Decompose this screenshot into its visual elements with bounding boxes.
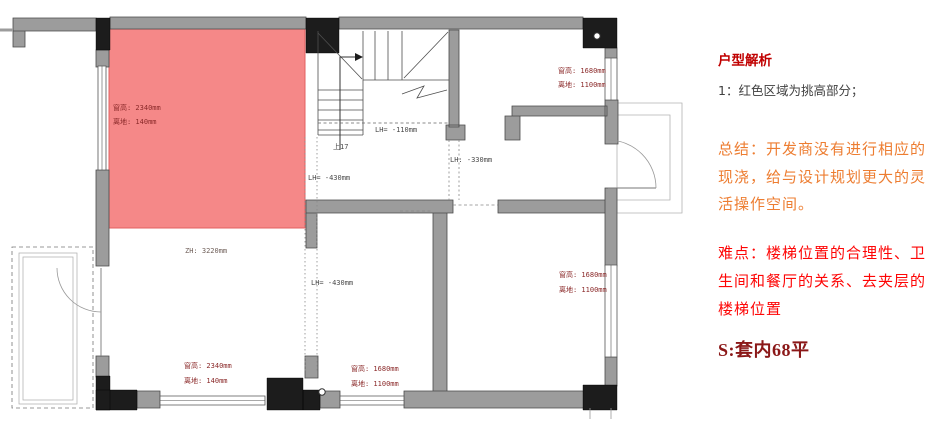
stairs-arrowhead (355, 53, 363, 61)
door-swing-arc (608, 140, 656, 188)
difficulty-line: 难点：楼梯位置的合理性、卫 (718, 239, 926, 267)
panel-difficulty: 难点：楼梯位置的合理性、卫 生间和餐厅的关系、去夹层的 楼梯位置 (718, 239, 926, 323)
door-swing-arc (57, 268, 101, 312)
dim-label: 离地: 140mm (184, 377, 228, 385)
balcony-dashed-outline (12, 247, 93, 408)
entry-porch-outline (617, 103, 682, 213)
panel-summary: 总结：开发商没有进行相应的 现浇，给与设计规划更大的灵 活操作空间。 (718, 136, 926, 219)
level-label: LH: -330mm (450, 156, 492, 164)
highlight-region-red (109, 29, 305, 228)
dim-label: 窗高: 2340mm (113, 104, 161, 112)
page: 窗高: 2340mm 离地: 140mm ZH: 3220mm LH= -430… (0, 0, 952, 440)
analysis-panel: 户型解析 1：红色区域为挑高部分； 总结：开发商没有进行相应的 现浇，给与设计规… (718, 0, 950, 440)
balcony-railing-inner (23, 257, 73, 400)
panel-point-1: 1：红色区域为挑高部分； (718, 80, 863, 99)
dim-label: 窗高: 1680mm (559, 271, 607, 279)
circle-marker (319, 389, 325, 395)
dim-label: 离地: 140mm (113, 118, 157, 126)
floor-plan: 窗高: 2340mm 离地: 140mm ZH: 3220mm LH= -430… (0, 0, 710, 440)
dim-label: 离地: 1100mm (558, 81, 606, 89)
dim-label: 离地: 1100mm (351, 380, 399, 388)
dim-label: 窗高: 1680mm (351, 365, 399, 373)
difficulty-line: 楼梯位置 (718, 295, 926, 323)
floor-plan-drawing (0, 0, 710, 440)
summary-line: 现浇，给与设计规划更大的灵 (718, 164, 926, 192)
entry-door (608, 140, 656, 188)
level-label: LH= -430mm (308, 174, 350, 182)
panel-area: S:套内68平 (718, 336, 810, 362)
dim-label: ZH: 3220mm (185, 247, 227, 255)
stairs-up-arrow (340, 57, 355, 150)
summary-line: 总结：开发商没有进行相应的 (718, 136, 926, 164)
summary-line: 活操作空间。 (718, 191, 926, 219)
balcony-door (57, 268, 101, 357)
level-label: LH= -430mm (311, 279, 353, 287)
stair-dashed-guides (449, 140, 459, 200)
dim-label: 窗高: 2340mm (184, 362, 232, 370)
void-dotted-guides (305, 137, 317, 372)
dim-label: 离地: 1100mm (559, 286, 607, 294)
stairs-up-label: 上17 (333, 143, 348, 151)
panel-title: 户型解析 (718, 49, 772, 69)
dim-label: 窗高: 1680mm (558, 67, 606, 75)
circle-marker (594, 33, 600, 39)
level-label: LH= -110mm (375, 126, 417, 134)
balcony-railing-outer (19, 253, 77, 404)
difficulty-line: 生间和餐厅的关系、去夹层的 (718, 267, 926, 295)
